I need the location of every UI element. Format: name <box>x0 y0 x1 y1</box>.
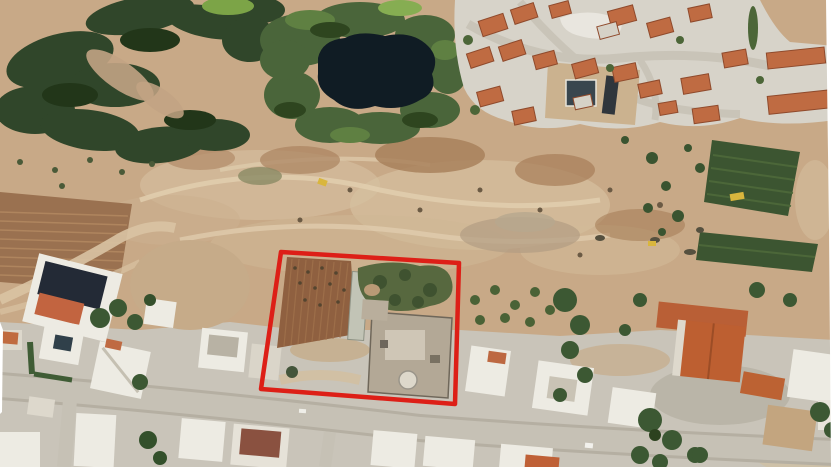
satellite-photo <box>0 0 835 467</box>
car <box>585 443 593 449</box>
aerial-scene <box>0 0 835 467</box>
pond <box>318 33 435 108</box>
car <box>299 409 306 413</box>
